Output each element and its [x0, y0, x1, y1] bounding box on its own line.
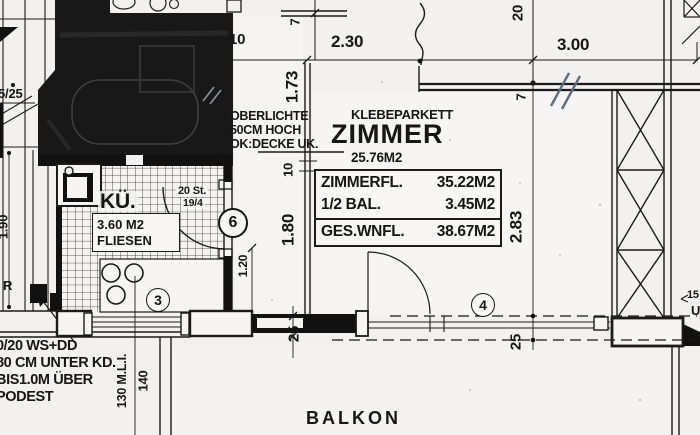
row-value: 38.67M2	[437, 223, 495, 241]
stair-dim-label: 5/25	[0, 87, 23, 100]
kueche-info-box: 3.60 M2 FLIESEN	[92, 213, 180, 252]
dim-1-80: 1.80	[280, 214, 297, 246]
u-label: U	[691, 304, 700, 317]
area-table-upper: ZIMMERFL. 35.22M2 1/2 BAL. 3.45M2	[316, 171, 500, 218]
dim-25-right: 25	[509, 334, 524, 350]
oberlichte-line3: OK:DECKE UK.	[230, 137, 318, 151]
zimmer-area: 25.76M2	[351, 151, 402, 165]
pillar	[612, 318, 683, 346]
shaft-note-line2: 80 CM UNTER KD.	[0, 355, 116, 372]
dim-10-mid: 10	[282, 163, 295, 177]
window-frame	[84, 313, 92, 335]
floorplan: 5/25 10 2.30 3.00 7 1.73 20 7 2.83 10 1.…	[0, 0, 700, 435]
stair-direction-marker	[0, 27, 18, 42]
dim-3-00: 3.00	[557, 36, 589, 53]
position-circle-6: 6	[218, 208, 248, 238]
dim-2-83: 2.83	[508, 211, 525, 243]
faucet-icon	[65, 167, 73, 175]
shaft-note-line1: 0/20 WS+DD	[0, 338, 116, 355]
room-title-zimmer: ZIMMER	[331, 121, 443, 148]
dim-2-30: 2.30	[331, 33, 363, 50]
position-circle-4: 4	[471, 293, 495, 317]
row-label: ZIMMERFL.	[321, 174, 403, 192]
shaft-note-line4: PODEST	[0, 389, 116, 406]
row-label: GES.WNFL.	[321, 223, 404, 241]
dim-1-90: 1.90	[0, 215, 10, 240]
row-value: 3.45M2	[445, 196, 495, 214]
table-row: GES.WNFL. 38.67M2	[321, 221, 495, 243]
sill-height-right: 140	[137, 370, 150, 391]
shaft-note: 0/20 WS+DD 80 CM UNTER KD. BIS1.0M ÜBER …	[0, 338, 116, 406]
dim-1-20: 1.20	[237, 255, 249, 278]
kueche-area: 3.60 M2	[97, 217, 177, 233]
oberlichte-note: OBERLICHTE 50CM HOCH OK:DECKE UK.	[230, 109, 318, 151]
bathroom-redacted	[38, 0, 241, 166]
position-circle-3: 3	[146, 288, 170, 312]
sill-height-left: 130 M.L.I.	[116, 354, 129, 408]
balcony-floor	[172, 346, 672, 435]
oberlichte-line1: OBERLICHTE	[230, 109, 318, 123]
dim-10-top: 10	[229, 32, 245, 47]
break-line-squiggle	[416, 3, 425, 65]
table-row: ZIMMERFL. 35.22M2	[321, 172, 495, 194]
row-value: 35.22M2	[437, 174, 495, 192]
door-frame	[356, 311, 368, 336]
dim-25-left: 25	[287, 326, 302, 342]
room-title-balkon: BALKON	[306, 409, 401, 427]
table-row: 1/2 BAL. 3.45M2	[321, 194, 495, 216]
dim-20: 20	[511, 5, 526, 21]
door-gap	[126, 155, 143, 165]
dim-15: 15	[687, 290, 699, 301]
r-label: R	[3, 279, 12, 292]
window-frame	[181, 313, 189, 335]
row-label: 1/2 BAL.	[321, 196, 381, 214]
stair-ratio-note: 19/4	[181, 198, 205, 209]
dim-1-73: 1.73	[284, 71, 301, 103]
area-table-lower: GES.WNFL. 38.67M2	[316, 218, 500, 245]
area-table: ZIMMERFL. 35.22M2 1/2 BAL. 3.45M2 GES.WN…	[314, 169, 502, 247]
dim-7-right: 7	[515, 93, 528, 100]
room-title-kueche: KÜ.	[98, 191, 138, 212]
oberlichte-line2: 50CM HOCH	[230, 123, 318, 137]
dim-7-top: 7	[289, 18, 302, 25]
stair-steps-note: 20 St.	[176, 186, 208, 197]
kueche-floor: FLIESEN	[97, 233, 177, 249]
shaft-note-line3: BIS1.0M ÜBER	[0, 372, 116, 389]
